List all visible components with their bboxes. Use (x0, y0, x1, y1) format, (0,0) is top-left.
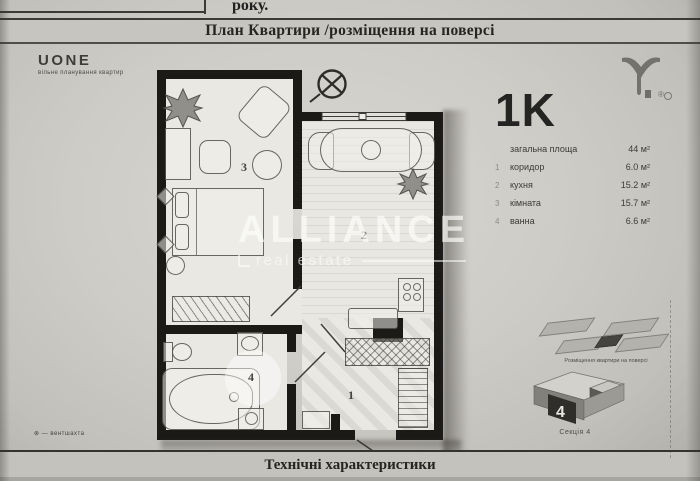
page-shadow-right (686, 0, 700, 481)
page-bottom-edge (0, 477, 700, 481)
scanned-floor-plan-page: року. План Квартири /розміщення на повер… (0, 0, 700, 481)
section-diagram: 4 (520, 366, 638, 428)
room-name: коридор (510, 162, 608, 172)
total-area-value: 44 м² (608, 144, 650, 154)
page-shadow-left (0, 0, 10, 481)
scan-mark-circle (664, 92, 672, 100)
room-name: кімната (510, 198, 608, 208)
room-label-hall: 1 (348, 388, 354, 403)
total-area-label: загальна площа (510, 144, 608, 154)
brand-tagline: вільне планування квартир (38, 70, 124, 76)
room-name: ванна (510, 216, 608, 226)
floor-plate (615, 333, 670, 352)
room-area-row: 4 ванна 6.6 м² (495, 216, 650, 226)
section-caption: Секція 4 (530, 429, 620, 436)
plan-shadow-right (443, 110, 469, 462)
floor-placement-caption: Розміщення квартири на поверсі (538, 358, 674, 364)
room-area: 15.2 м² (608, 180, 650, 190)
watermark: ALLIANCE real estate (238, 210, 466, 269)
room-area: 6.0 м² (608, 162, 650, 172)
floor-plate (538, 317, 595, 336)
watermark-title: ALLIANCE (238, 210, 466, 250)
room-label-bath: 4 (248, 370, 254, 385)
room-number: 2 (495, 181, 510, 190)
page-title: План Квартири /розміщення на поверсі (205, 22, 494, 40)
watermark-rule (362, 260, 466, 262)
room-name: кухня (510, 180, 608, 190)
floor-placement-diagram (543, 314, 669, 360)
header-cell-border (204, 0, 206, 14)
room-number: 1 (495, 163, 510, 172)
room-number: 3 (495, 199, 510, 208)
page-crease (670, 300, 671, 458)
watermark-corner-icon (238, 255, 250, 267)
section-number: 4 (556, 404, 565, 421)
watermark-subtitle: real estate (256, 252, 354, 269)
footer-title: Технічні характеристики (264, 457, 435, 474)
header-divider-short (0, 11, 205, 13)
room-number: 4 (495, 217, 510, 226)
legend-footnote: ⊗ — вентшахта (34, 430, 84, 437)
header-divider-bottom (0, 42, 700, 44)
apartment-type: 1K (495, 86, 650, 134)
header-cell-label: року. (232, 0, 268, 15)
total-area-row: загальна площа 44 м² (495, 144, 650, 154)
room-area-row: 1 коридор 6.0 м² (495, 162, 650, 172)
room-area: 15.7 м² (608, 198, 650, 208)
apartment-info-panel: 1K загальна площа 44 м² 1 коридор 6.0 м²… (495, 86, 650, 226)
brand-block: UONE вільне планування квартир (38, 52, 124, 76)
registered-mark: ® (658, 90, 664, 99)
room-label-living: 3 (241, 160, 247, 175)
room-area-row: 3 кімната 15.7 м² (495, 198, 650, 208)
room-area: 6.6 м² (608, 216, 650, 226)
floor-plate (602, 317, 659, 336)
room-area-row: 2 кухня 15.2 м² (495, 180, 650, 190)
brand-name: UONE (38, 52, 124, 69)
page-title-bar: План Квартири /розміщення на поверсі (0, 20, 700, 42)
